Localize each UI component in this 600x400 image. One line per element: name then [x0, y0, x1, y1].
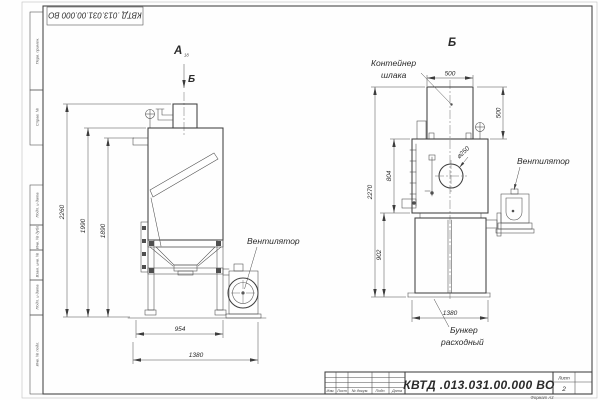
dim-1380-b: 1380 — [443, 310, 458, 317]
margin-label-inv-podl: Инв. № подл. — [35, 342, 40, 367]
fan-callout-b: Вентилятор — [517, 156, 570, 166]
view-b: Б Контейнер шлака 500 500 — [367, 37, 570, 347]
hood-incline — [150, 153, 218, 197]
dims-b-horizontal: 1380 — [412, 300, 488, 322]
dim-902: 902 — [376, 249, 383, 260]
top-stamp-text: КВТД .013.031.00.000 ВО — [48, 11, 142, 20]
engineering-drawing: КВТД .013.031.00.000 ВО Перв. примен. Сп… — [0, 0, 600, 400]
container-callout-1: Контейнер — [371, 58, 416, 68]
stand — [145, 240, 226, 315]
valve-handwheel-b — [476, 123, 485, 140]
fan-b — [486, 189, 534, 236]
container-callout-2: шлака — [381, 70, 407, 80]
dim-954: 954 — [175, 326, 186, 333]
dim-500-h: 500 — [496, 107, 503, 118]
bunker-callout-2: расходный — [440, 337, 484, 347]
hinge-strip — [141, 222, 148, 272]
stub-pipe — [417, 121, 426, 139]
title-doc-number: КВТД .013.031.00.000 ВО — [403, 378, 555, 392]
sheet-label: Лист — [557, 376, 570, 381]
margin-label-podp2: Подп. и дата — [35, 284, 40, 310]
fan-callout-a: Вентилятор — [247, 236, 300, 246]
valve-handwheel — [146, 110, 155, 129]
top-stamp: КВТД .013.031.00.000 ВО — [47, 7, 143, 25]
dims-b-vertical: 2270 902 804 — [367, 87, 425, 297]
fan-a — [223, 264, 261, 318]
bunker — [408, 213, 490, 297]
title-col-podp: Подп. — [375, 389, 385, 393]
bunker-callout-1: Бункер — [450, 325, 478, 335]
margin-label-inv-dubl: Инв. № дубл. — [35, 225, 40, 250]
dim-port: ⌀250 — [456, 145, 472, 160]
dim-1380-a: 1380 — [189, 352, 204, 359]
dim-1990: 1990 — [80, 218, 87, 233]
dim-500-w: 500 — [445, 71, 456, 78]
view-a-label-sub: 18 — [184, 53, 189, 58]
side-flange — [133, 138, 148, 145]
title-col-ndoc: № докум. — [352, 389, 369, 393]
view-a: А 18 Б — [59, 45, 300, 364]
margin-label-podp1: Подп. и дата — [35, 192, 40, 218]
title-col-izm: Изм. — [326, 389, 334, 393]
format-note: Формат А3 — [531, 395, 555, 400]
margin-stamps: Перв. примен. Справ. № Подп. и дата Инв.… — [30, 12, 43, 394]
hopper — [150, 247, 221, 275]
dims-a-horizontal: 954 1380 — [133, 320, 258, 364]
drawing-sheet: КВТД .013.031.00.000 ВО Перв. примен. Сп… — [0, 0, 600, 400]
title-col-data: Дата — [391, 389, 402, 393]
chimney — [173, 104, 197, 128]
dim-2260: 2260 — [59, 204, 66, 220]
body-a — [148, 128, 223, 240]
title-col-list: Лист — [336, 389, 347, 393]
view-a-label: А — [173, 45, 182, 57]
title-block: Изм. Лист № докум. Подп. Дата КВТД .013.… — [325, 372, 592, 400]
elbow-pipe — [156, 109, 173, 120]
side-ladder — [402, 144, 416, 208]
port-latch — [425, 155, 435, 196]
margin-label-sprav: Справ. № — [35, 107, 40, 126]
dim-2270: 2270 — [367, 184, 374, 200]
dim-804: 804 — [386, 170, 393, 181]
margin-label-perv: Перв. примен. — [35, 38, 40, 65]
sheet-number: 2 — [561, 386, 566, 393]
view-a-section-arrow-label: Б — [188, 74, 195, 85]
view-b-label: Б — [448, 37, 456, 49]
margin-label-vzam: Взам. инв. № — [35, 252, 40, 277]
dim-1890: 1890 — [100, 223, 107, 238]
